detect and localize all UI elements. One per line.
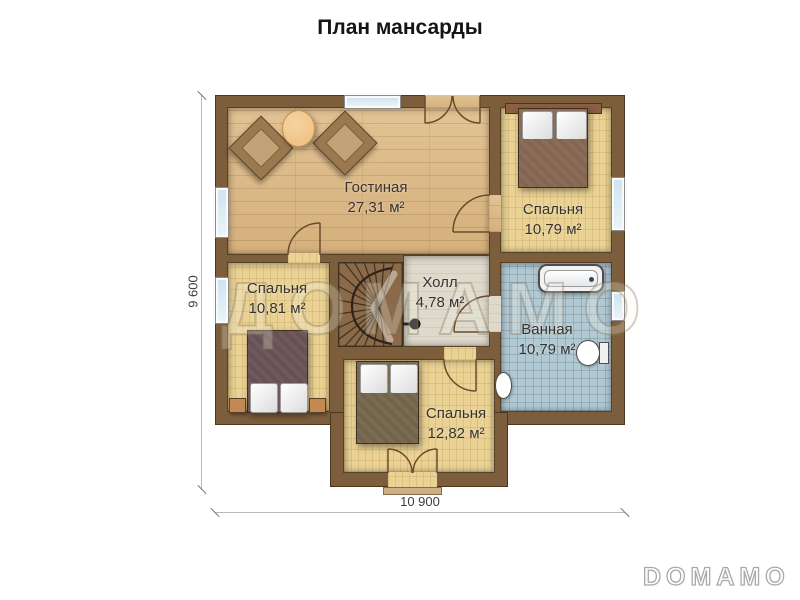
armchair-cushion <box>325 123 365 163</box>
window-living-top <box>345 96 400 108</box>
page-title: План мансарды <box>0 16 800 40</box>
brand-logo: DOMAMO <box>643 563 790 592</box>
dimension-tick <box>197 91 206 100</box>
window-living-left <box>216 188 228 237</box>
room-label-living: Гостиная 27,31 м² <box>306 178 446 217</box>
room-label-bathroom: Ванная 10,79 м² <box>487 320 607 359</box>
room-area: 10,79 м² <box>493 220 613 240</box>
doorway-balcony-top <box>425 95 480 108</box>
room-label-bedroom-tr: Спальня 10,79 м² <box>493 200 613 239</box>
nightstand-left <box>229 398 246 413</box>
pillow <box>556 111 587 140</box>
room-area: 10,79 м² <box>487 340 607 360</box>
pillow <box>360 364 388 394</box>
sink <box>495 372 512 399</box>
room-area: 12,82 м² <box>396 424 516 444</box>
room-name: Холл <box>390 273 490 293</box>
doorway-living-to-bedroom-left <box>288 253 320 263</box>
room-area: 4,78 м² <box>390 293 490 313</box>
dimension-line-horizontal <box>215 512 625 513</box>
bathtub <box>538 264 604 293</box>
floor-plan-page: План мансарды <box>0 0 800 600</box>
doorway-balcony-bottom <box>388 472 437 488</box>
blanket <box>248 331 307 383</box>
armchair-cushion <box>241 128 281 168</box>
blanket <box>519 139 587 187</box>
room-label-bedroom-bottom: Спальня 12,82 м² <box>396 404 516 443</box>
dimension-tick <box>197 485 206 494</box>
dimension-label-horizontal: 10 900 <box>370 494 470 509</box>
room-area: 27,31 м² <box>306 198 446 218</box>
dimension-label-vertical: 9 600 <box>186 270 201 314</box>
window-bedroom-tr-right <box>612 178 624 230</box>
room-name: Спальня <box>217 279 337 299</box>
coffee-table <box>282 110 315 147</box>
room-name: Ванная <box>487 320 607 340</box>
room-name: Спальня <box>493 200 613 220</box>
pillow <box>522 111 553 140</box>
room-area: 10,81 м² <box>217 299 337 319</box>
bed-bedroom-tr <box>518 108 588 188</box>
room-label-bedroom-left: Спальня 10,81 м² <box>217 279 337 318</box>
bathtub-drain <box>589 277 594 282</box>
bed-bedroom-left <box>247 330 308 413</box>
dimension-line-vertical <box>201 95 202 490</box>
pillow <box>390 364 418 394</box>
pillow <box>250 383 278 413</box>
room-name: Спальня <box>396 404 516 424</box>
window-bathroom-right <box>612 292 624 320</box>
room-name: Гостиная <box>306 178 446 198</box>
nightstand-right <box>309 398 326 413</box>
room-label-hall: Холл 4,78 м² <box>390 273 490 312</box>
doorway-hall-to-bedroom-bottom <box>444 347 476 360</box>
pillow <box>280 383 308 413</box>
